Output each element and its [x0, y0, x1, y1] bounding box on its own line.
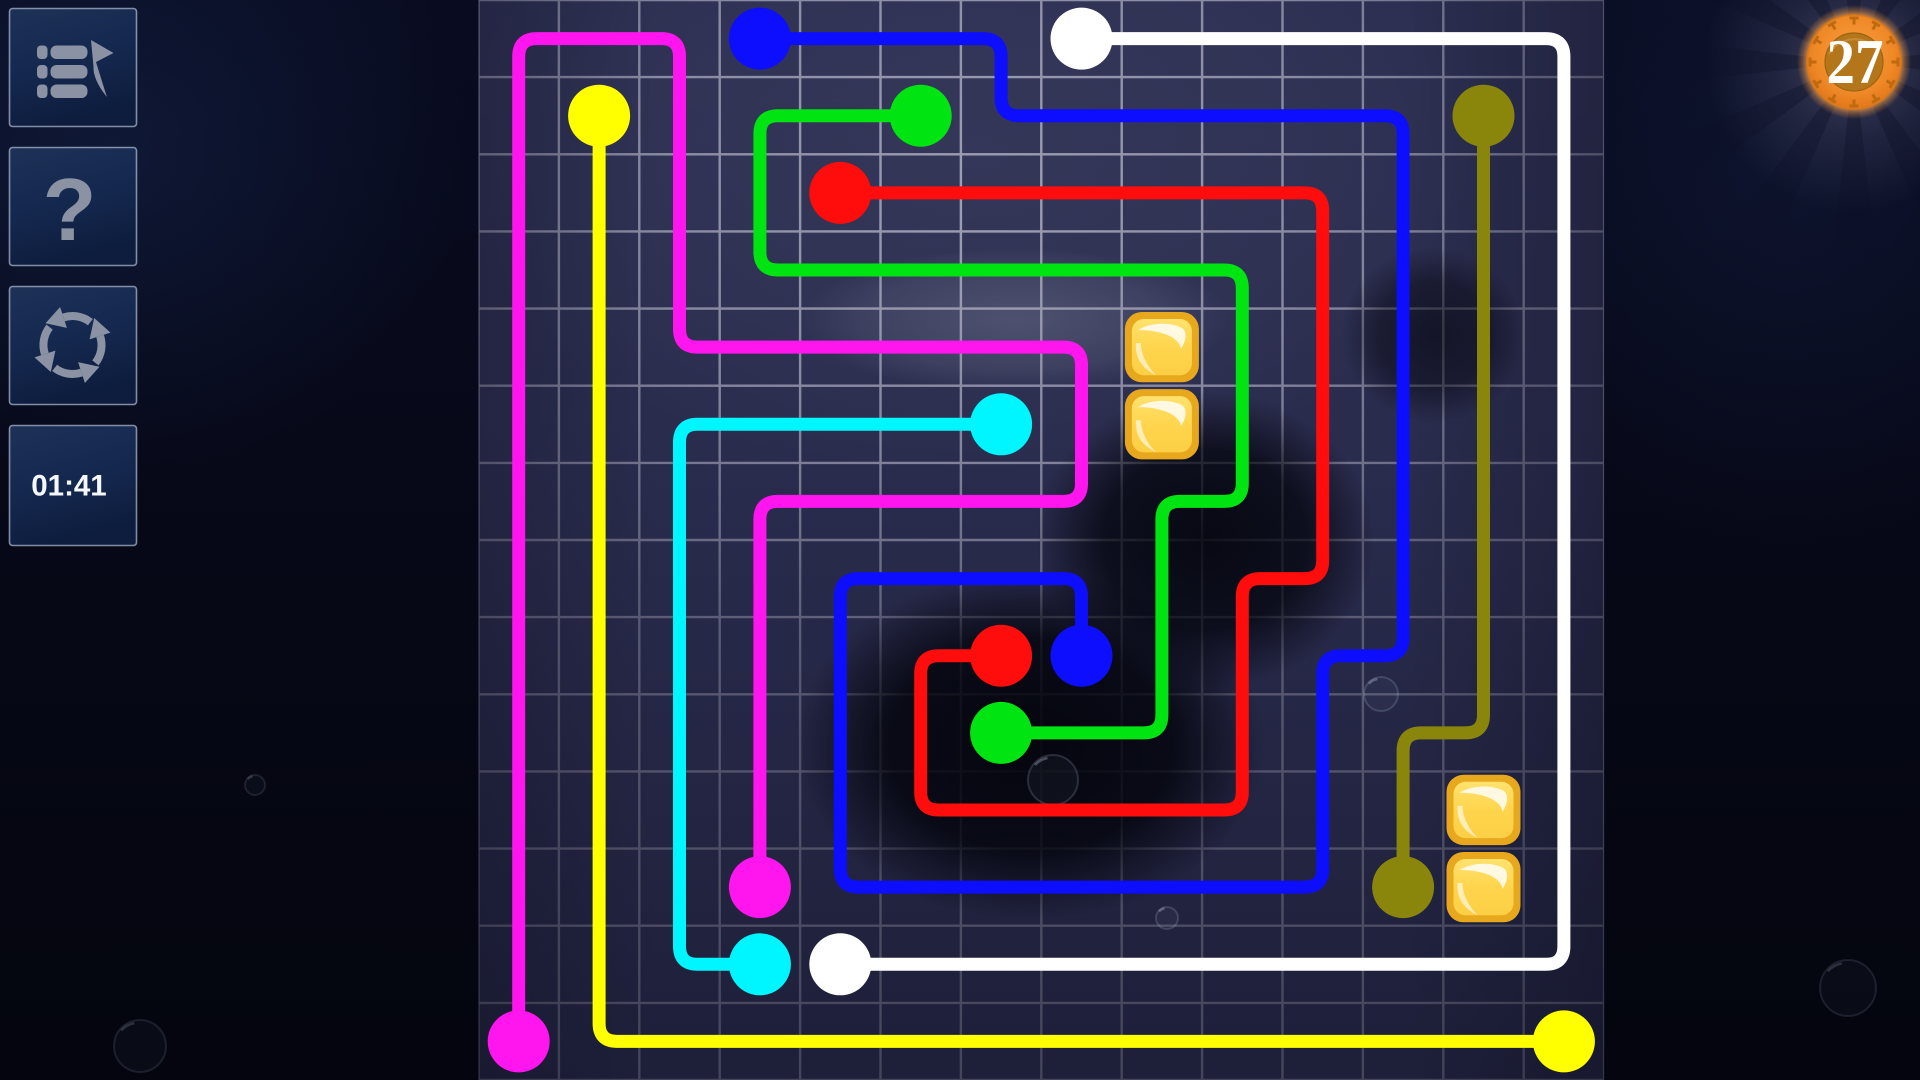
svg-text:27: 27	[1827, 27, 1884, 97]
svg-text:01:41: 01:41	[31, 470, 106, 503]
svg-text:?: ?	[43, 160, 97, 259]
